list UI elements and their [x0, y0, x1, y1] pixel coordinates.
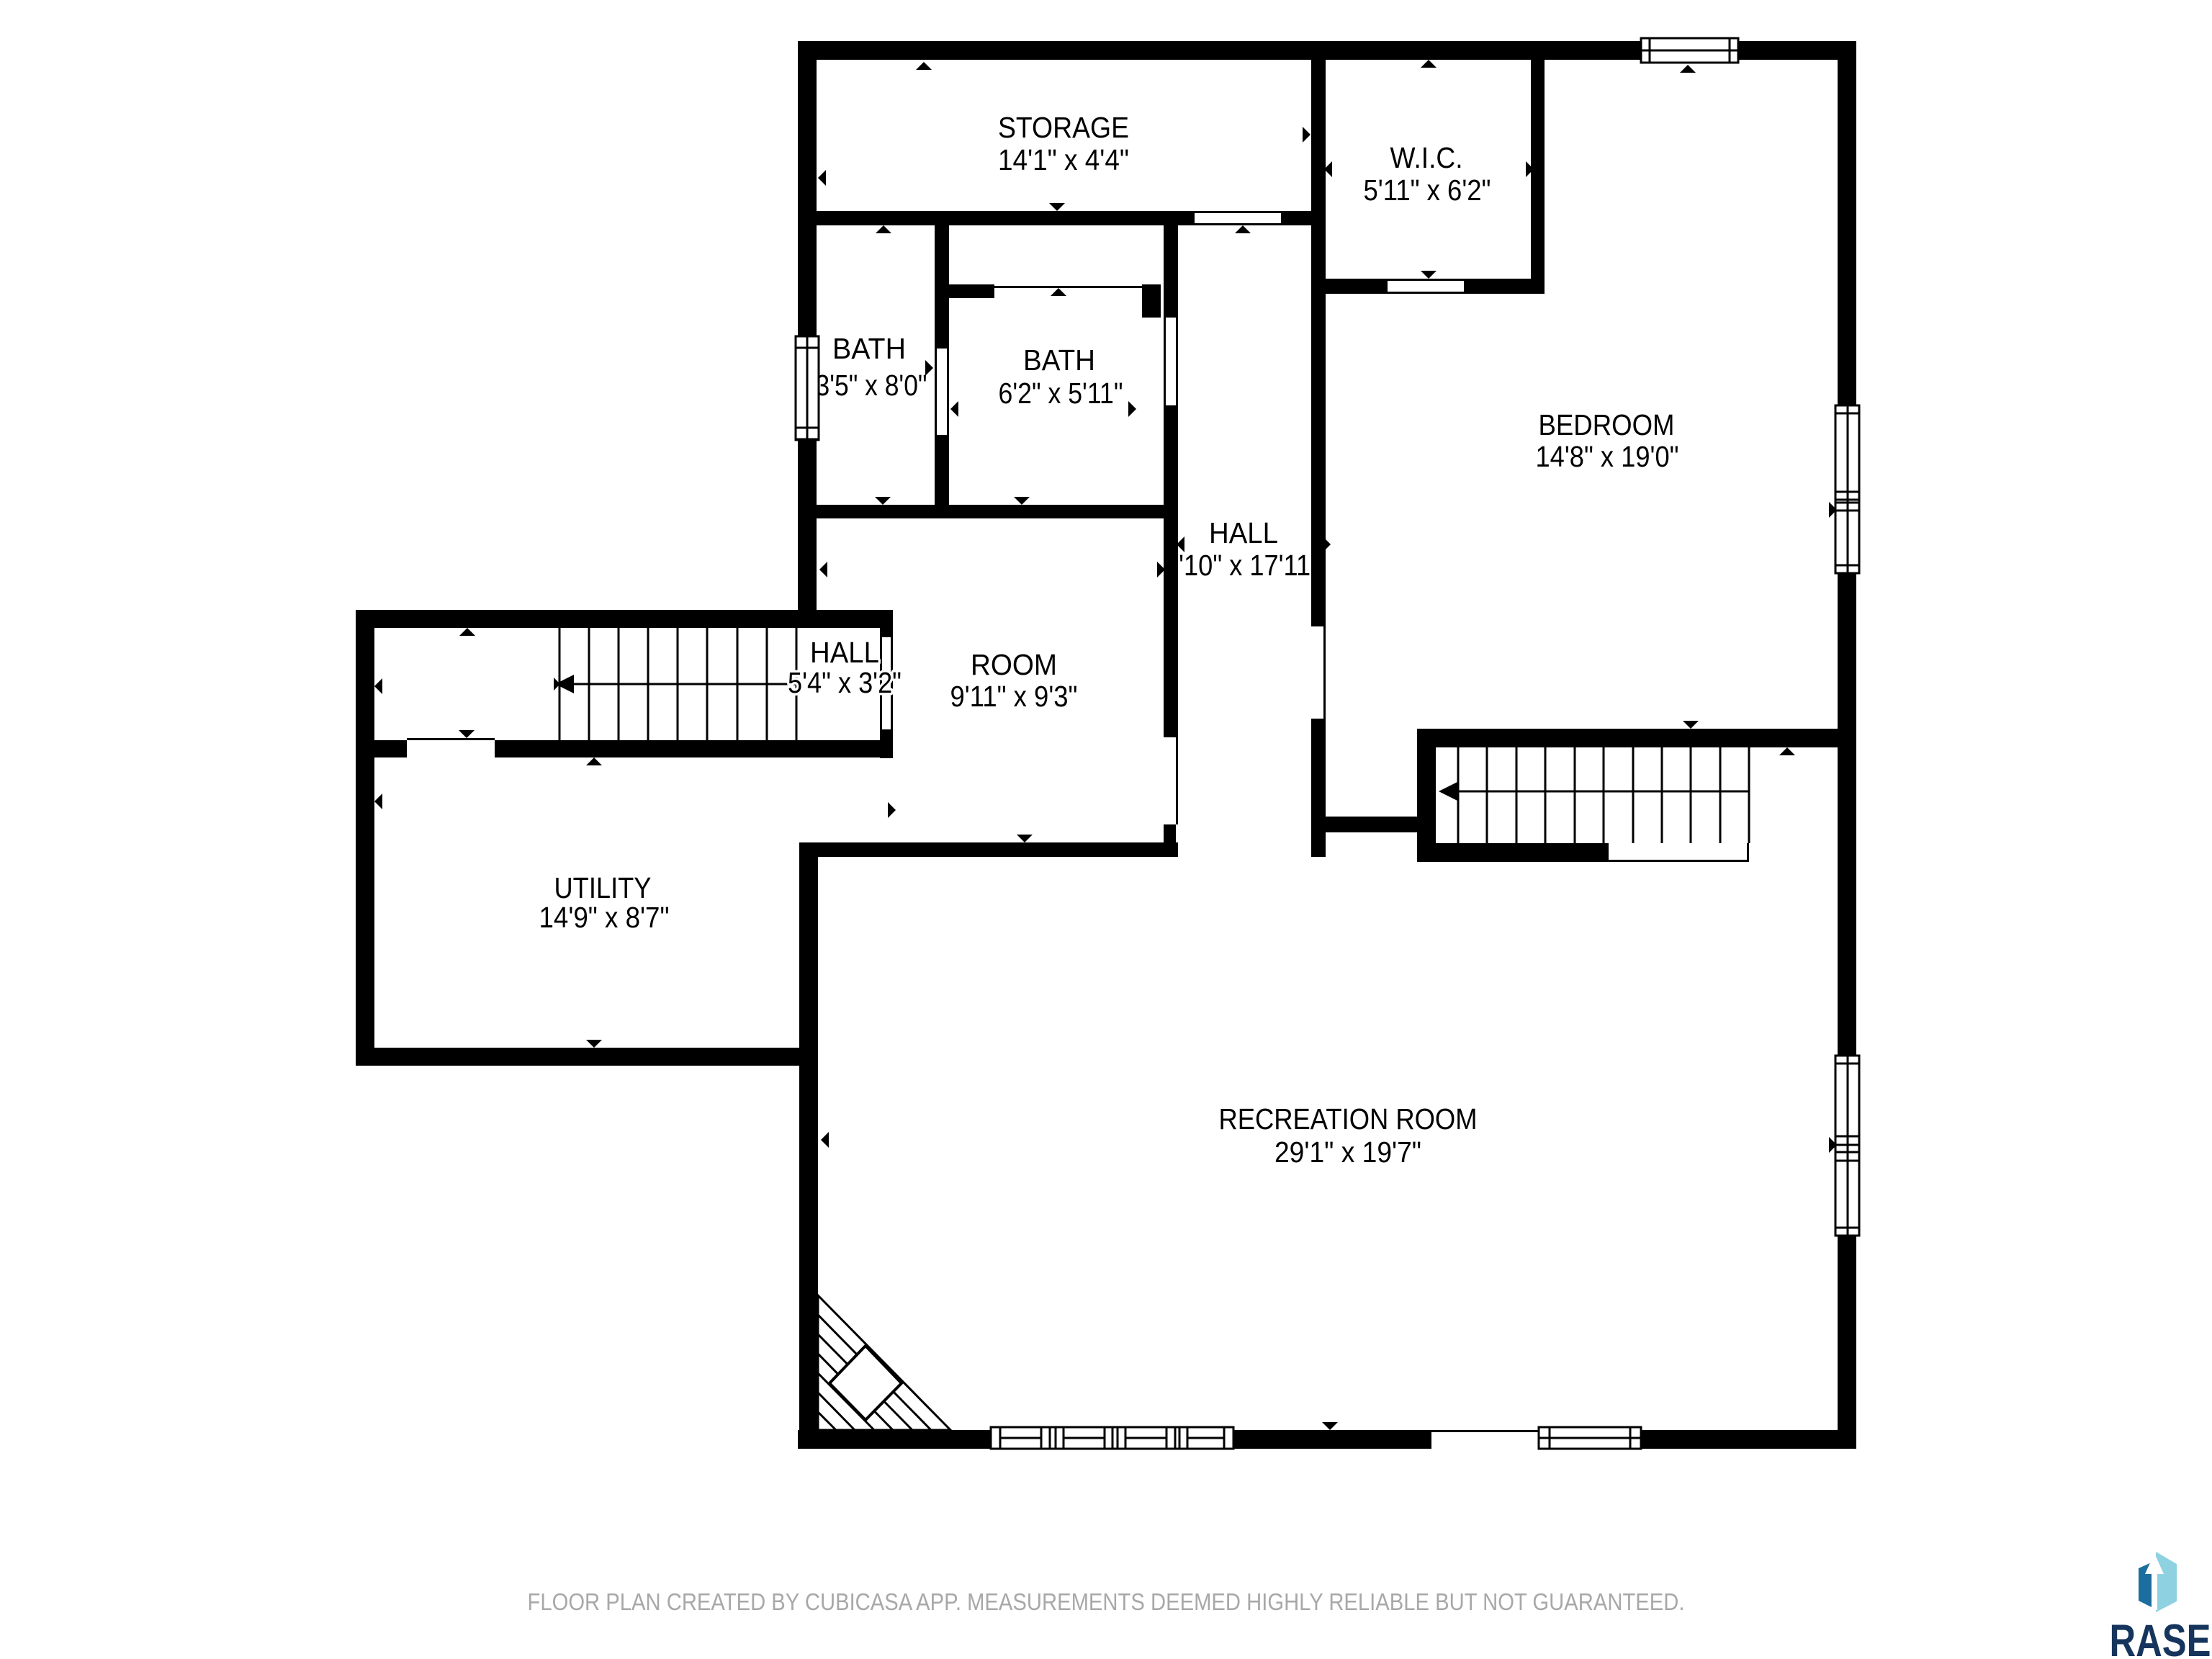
svg-text:3'10" x 17'11": 3'10" x 17'11" [1164, 549, 1320, 582]
svg-text:6'2" x 5'11": 6'2" x 5'11" [999, 377, 1123, 410]
svg-text:W.I.C.: W.I.C. [1390, 141, 1463, 174]
svg-text:14'1" x 4'4": 14'1" x 4'4" [998, 143, 1129, 176]
svg-text:ROOM: ROOM [971, 648, 1057, 681]
svg-text:FLOOR PLAN CREATED BY CUBICASA: FLOOR PLAN CREATED BY CUBICASA APP. MEAS… [528, 1588, 1685, 1615]
svg-text:14'9" x 8'7": 14'9" x 8'7" [539, 901, 670, 934]
svg-text:RASE: RASE [2110, 1616, 2211, 1659]
svg-text:3'5" x 8'0": 3'5" x 8'0" [816, 369, 927, 402]
svg-text:HALL: HALL [1209, 516, 1278, 549]
svg-text:BATH: BATH [1023, 343, 1095, 377]
svg-text:UTILITY: UTILITY [554, 871, 652, 904]
svg-text:5'4" x 3'2": 5'4" x 3'2" [788, 666, 902, 699]
svg-text:BATH: BATH [832, 332, 906, 365]
svg-text:HALL: HALL [810, 636, 879, 669]
svg-text:RECREATION ROOM: RECREATION ROOM [1219, 1102, 1478, 1136]
svg-text:29'1" x 19'7": 29'1" x 19'7" [1274, 1136, 1421, 1169]
svg-text:5'11" x 6'2": 5'11" x 6'2" [1364, 174, 1491, 207]
svg-text:14'8" x 19'0": 14'8" x 19'0" [1536, 440, 1679, 473]
svg-text:9'11" x 9'3": 9'11" x 9'3" [950, 680, 1078, 713]
svg-text:STORAGE: STORAGE [998, 111, 1129, 144]
svg-text:BEDROOM: BEDROOM [1539, 408, 1675, 441]
